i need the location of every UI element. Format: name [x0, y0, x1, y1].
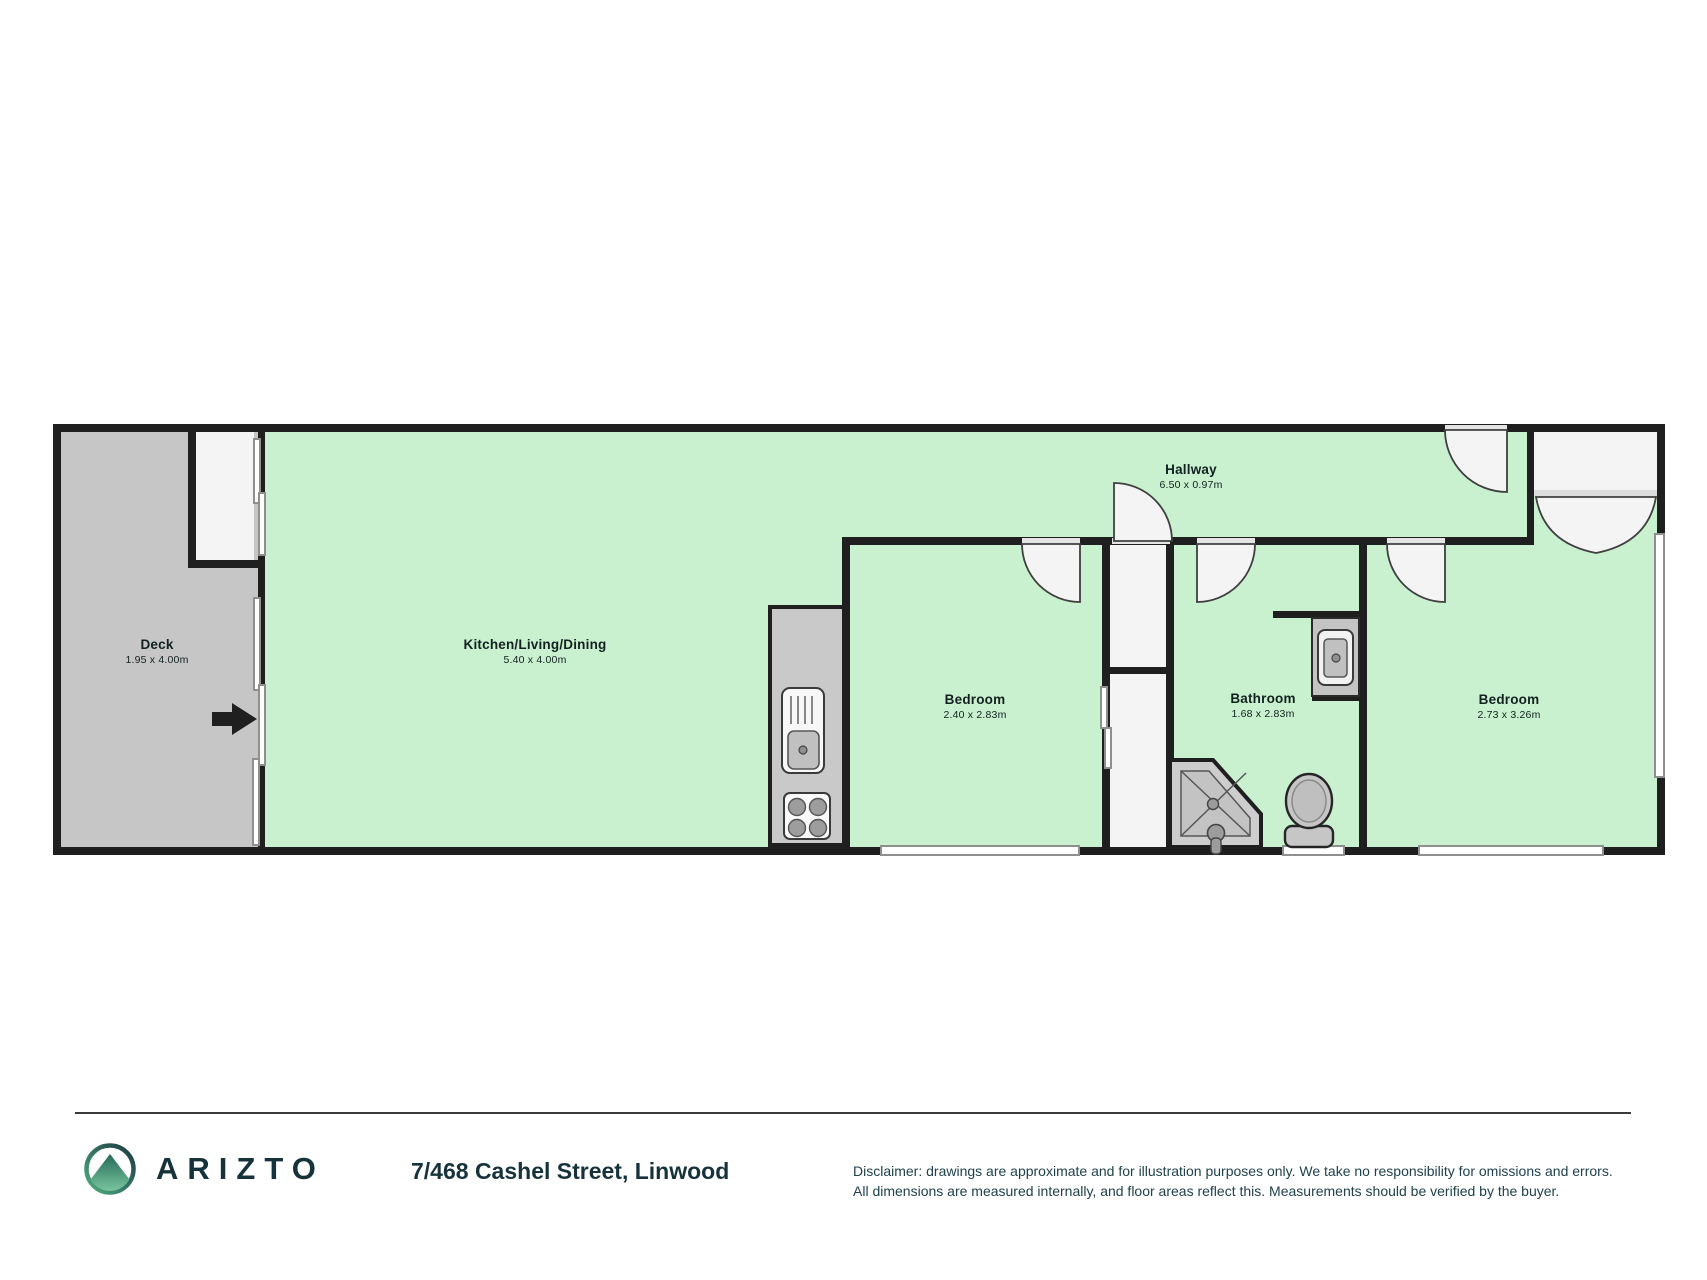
bathroom-door-opening: [1197, 538, 1255, 544]
wardrobe-sliding-door: [1104, 727, 1112, 769]
hall-closet: [1110, 545, 1166, 667]
wall-vanity-top: [1273, 611, 1367, 618]
room-name: Hallway: [1159, 462, 1222, 477]
wall-alcove-left: [1527, 424, 1534, 545]
disclaimer-text: Disclaimer: drawings are approximate and…: [853, 1161, 1653, 1201]
bedroom2-door-opening: [1387, 538, 1445, 544]
room-dimensions: 2.40 x 2.83m: [943, 709, 1006, 721]
room-name: Bedroom: [1477, 692, 1540, 707]
room-label-bedroom-1: Bedroom 2.40 x 2.83m: [943, 692, 1006, 721]
wall-left: [53, 424, 61, 855]
deck-slider-pane: [258, 684, 266, 766]
wall-top: [53, 424, 1665, 432]
wall-closet-divider: [1102, 667, 1174, 674]
kitchen-counter: [768, 605, 846, 847]
floor-plan: Deck 1.95 x 4.00m Kitchen/Living/Dining …: [0, 0, 1707, 1280]
bedroom1-door-opening: [1022, 538, 1080, 544]
room-label-hallway: Hallway 6.50 x 0.97m: [1159, 462, 1222, 491]
room-name: Bathroom: [1230, 691, 1295, 706]
deck-slider-pane: [252, 758, 260, 846]
french-door-alcove: [1534, 432, 1657, 490]
closet-door-opening: [1112, 538, 1170, 544]
room-dimensions: 6.50 x 0.97m: [1159, 479, 1222, 491]
floor-fill-rooms: [57, 428, 1661, 851]
room-dimensions: 2.73 x 3.26m: [1477, 709, 1540, 721]
deck-slider-pane: [253, 597, 261, 691]
brand-name: ARIZTO: [156, 1151, 325, 1187]
wall-bathroom-left: [1166, 537, 1174, 847]
wall-notch-bottom: [188, 560, 262, 568]
room-label-bathroom: Bathroom 1.68 x 2.83m: [1230, 691, 1295, 720]
deck-notch-window-pane: [258, 492, 266, 556]
bedroom2-side-window: [1654, 533, 1665, 778]
bedroom1-window: [880, 845, 1080, 856]
wall-bathroom-right: [1359, 537, 1367, 847]
room-label-kitchen-living-dining: Kitchen/Living/Dining 5.40 x 4.00m: [464, 637, 607, 666]
room-dimensions: 1.95 x 4.00m: [125, 654, 188, 666]
room-dimensions: 1.68 x 2.83m: [1230, 708, 1295, 720]
wall-notch-left: [188, 424, 196, 568]
french-door-track: [1534, 490, 1657, 497]
bathroom-window: [1282, 845, 1345, 856]
room-label-deck: Deck 1.95 x 4.00m: [125, 637, 188, 666]
wall-vanity-bottom: [1312, 694, 1367, 701]
footer-divider: [75, 1112, 1631, 1114]
room-name: Bedroom: [943, 692, 1006, 707]
entry-door-opening: [1445, 425, 1507, 431]
property-address: 7/468 Cashel Street, Linwood: [411, 1158, 729, 1185]
disclaimer-line-2: All dimensions are measured internally, …: [853, 1181, 1653, 1201]
room-label-bedroom-2: Bedroom 2.73 x 3.26m: [1477, 692, 1540, 721]
room-name: Deck: [125, 637, 188, 652]
wardrobe-sliding-door: [1100, 686, 1108, 729]
room-dimensions: 5.40 x 4.00m: [464, 654, 607, 666]
bedroom2-window: [1418, 845, 1604, 856]
arizto-logo-icon: [83, 1142, 137, 1196]
bedroom-wardrobe: [1110, 674, 1166, 847]
room-name: Kitchen/Living/Dining: [464, 637, 607, 652]
disclaimer-line-1: Disclaimer: drawings are approximate and…: [853, 1161, 1653, 1181]
deck-notch: [196, 432, 254, 560]
